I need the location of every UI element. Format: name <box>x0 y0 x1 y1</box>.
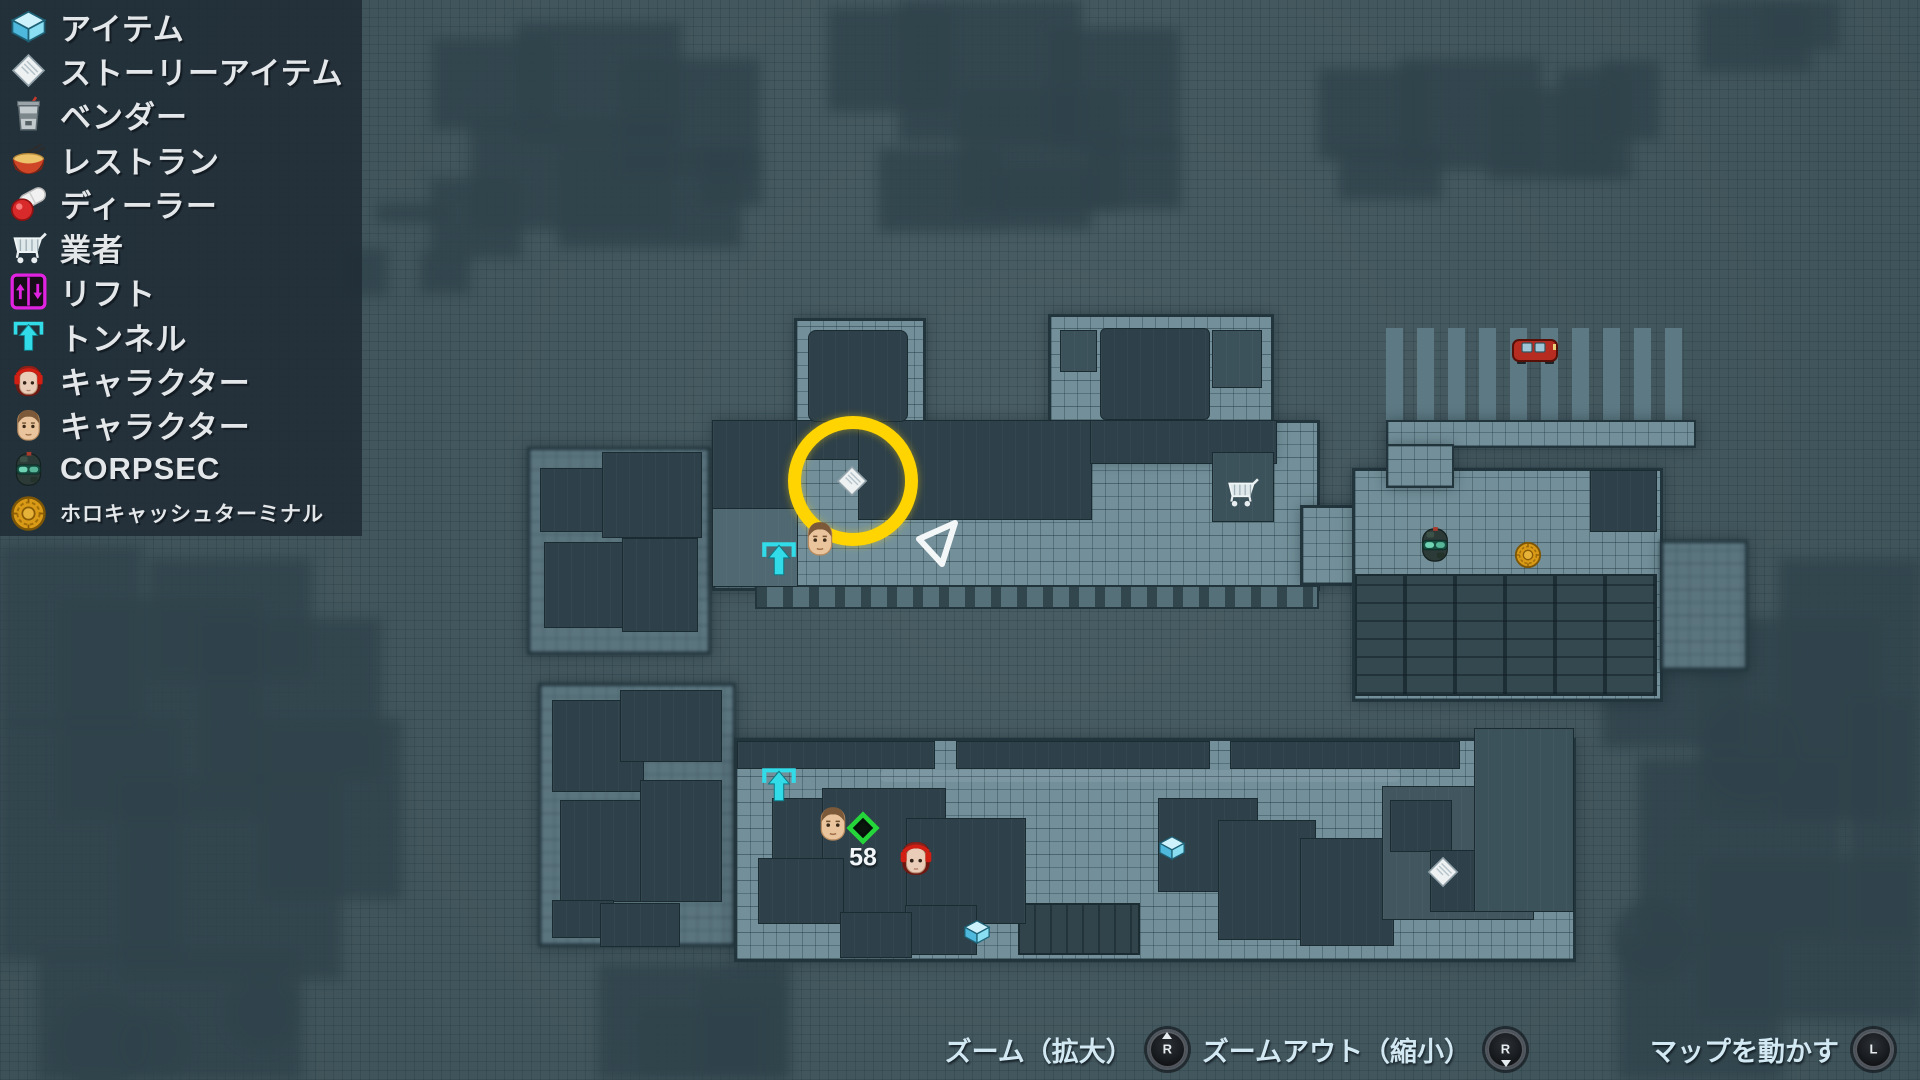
map-room-block <box>640 780 722 902</box>
legend-label: ベンダー <box>60 92 188 137</box>
right-stick-down-icon: R <box>1485 1029 1526 1070</box>
map-room-block <box>840 912 912 958</box>
dealer-pill-icon <box>8 183 48 223</box>
item-box-icon <box>8 6 48 46</box>
legend-label: レストラン <box>60 137 220 182</box>
legend-label: キャラクター <box>60 358 251 403</box>
stick-letter: L <box>1870 1042 1878 1057</box>
legend-label: ホロキャッシュターミナル <box>60 498 324 528</box>
blurred-building <box>376 203 448 223</box>
stick-letter: R <box>1501 1042 1510 1057</box>
control-hints-bar: ズーム（拡大） R ズームアウト（縮小） R マップを動かす L <box>945 1018 1920 1080</box>
legend-item-story-item: ストーリーアイテム <box>0 48 362 92</box>
map-room-block <box>620 690 722 762</box>
machine-row-upper <box>1355 574 1657 696</box>
blurred-building <box>420 252 470 294</box>
blurred-building <box>1700 700 1800 800</box>
map-room-block <box>1212 330 1262 388</box>
blurred-building <box>1048 28 1180 150</box>
upper-right-pod <box>1660 540 1748 671</box>
character-male-icon <box>8 405 48 445</box>
upper-slab-ledge <box>755 585 1319 609</box>
legend-item-vendor: ベンダー <box>0 93 362 137</box>
map-cursor[interactable] <box>911 517 961 571</box>
dock-connector <box>1386 444 1454 488</box>
map-room-block <box>808 330 908 422</box>
floor-wear-streak <box>880 770 1400 782</box>
lift-icon <box>8 272 48 312</box>
map-room-block <box>956 741 1210 769</box>
map-room-block <box>1590 470 1657 532</box>
waypoint-distance-label: 58 <box>849 846 877 871</box>
map-room-block <box>1060 330 1097 372</box>
map-room-block <box>600 903 680 947</box>
blurred-building <box>148 558 312 680</box>
legend-item-restaurant: レストラン <box>0 137 362 181</box>
map-room-block <box>1474 728 1574 912</box>
map-legend-panel: アイテム ストーリーアイテム ベンダー レストラン ディーラー 業者 リフト <box>0 0 362 536</box>
legend-label: リフト <box>60 269 156 314</box>
zoom-out-hint-label: ズームアウト（縮小） <box>1202 1030 1471 1069</box>
legend-item-dealer: ディーラー <box>0 181 362 225</box>
blurred-building <box>225 975 301 1051</box>
blurred-building <box>1848 698 1920 940</box>
blurred-building <box>1338 148 1442 200</box>
zoom-in-hint-label: ズーム（拡大） <box>945 1030 1133 1069</box>
tunnel-icon <box>8 316 48 356</box>
item-marker-2 <box>963 920 991 944</box>
waypoint-marker <box>845 810 881 846</box>
map-room-block <box>1390 800 1452 852</box>
blurred-building <box>1088 138 1182 210</box>
move-map-hint-label: マップを動かす <box>1650 1030 1839 1069</box>
vendor-cup-icon <box>8 95 48 135</box>
red-vehicle <box>1509 332 1561 368</box>
trader-marker <box>1225 476 1259 508</box>
legend-item-trader: 業者 <box>0 225 362 269</box>
blurred-building <box>1760 0 1840 50</box>
map-room-block <box>1230 741 1460 769</box>
story-item-marker-2 <box>1426 855 1460 889</box>
legend-label: CORPSEC <box>60 451 220 487</box>
holocash-icon <box>8 493 48 533</box>
corpsec-icon <box>8 449 48 489</box>
game-map-screen: 58 アイテム ストーリーアイテム ベンダー レストラン ディーラー 業者 <box>0 0 1920 1080</box>
blurred-building <box>700 148 762 206</box>
tunnel-marker-upper <box>758 538 800 580</box>
story-item-icon <box>8 50 48 90</box>
blurred-building <box>998 168 1092 230</box>
legend-item-tunnel: トンネル <box>0 314 362 358</box>
left-stick-icon: L <box>1853 1029 1894 1070</box>
blurred-building <box>120 1010 190 1080</box>
blurred-building <box>258 718 402 900</box>
restaurant-bowl-icon <box>8 139 48 179</box>
legend-item-corpsec: CORPSEC <box>0 447 362 491</box>
map-room-block <box>712 420 798 510</box>
machine-row-lower <box>1018 903 1140 955</box>
blurred-building <box>1612 898 1696 982</box>
map-room-block <box>758 858 844 924</box>
map-room-block <box>622 538 698 632</box>
character-female-icon <box>8 361 48 401</box>
map-room-block <box>1100 328 1210 420</box>
trader-cart-icon <box>8 228 48 268</box>
legend-label: 業者 <box>60 225 124 270</box>
legend-label: アイテム <box>60 4 185 49</box>
corpsec-marker <box>1418 526 1452 564</box>
legend-item-lift: リフト <box>0 270 362 314</box>
legend-label: トンネル <box>60 314 187 359</box>
holocash-terminal-marker <box>1514 541 1542 569</box>
stick-letter: R <box>1163 1042 1172 1057</box>
story-item-marker-highlighted <box>835 464 869 498</box>
legend-item-holocash-terminal: ホロキャッシュターミナル <box>0 491 362 535</box>
right-stick-up-icon: R <box>1147 1029 1188 1070</box>
tunnel-marker-lower <box>758 764 800 806</box>
legend-label: ストーリーアイテム <box>60 48 344 93</box>
map-room-block <box>540 468 606 532</box>
legend-label: ディーラー <box>60 181 218 226</box>
blurred-building <box>878 148 1002 232</box>
legend-label: キャラクター <box>60 402 251 447</box>
character-marker-upper <box>802 518 838 558</box>
blurred-building <box>700 980 790 1080</box>
legend-item-item: アイテム <box>0 4 362 48</box>
map-room-block <box>1300 838 1394 946</box>
item-marker-1 <box>1158 836 1186 860</box>
character-female-marker <box>898 838 934 878</box>
blurred-building <box>1600 60 1660 140</box>
legend-item-character-female: キャラクター <box>0 358 362 402</box>
map-room-block <box>602 452 702 538</box>
legend-item-character-male: キャラクター <box>0 403 362 447</box>
